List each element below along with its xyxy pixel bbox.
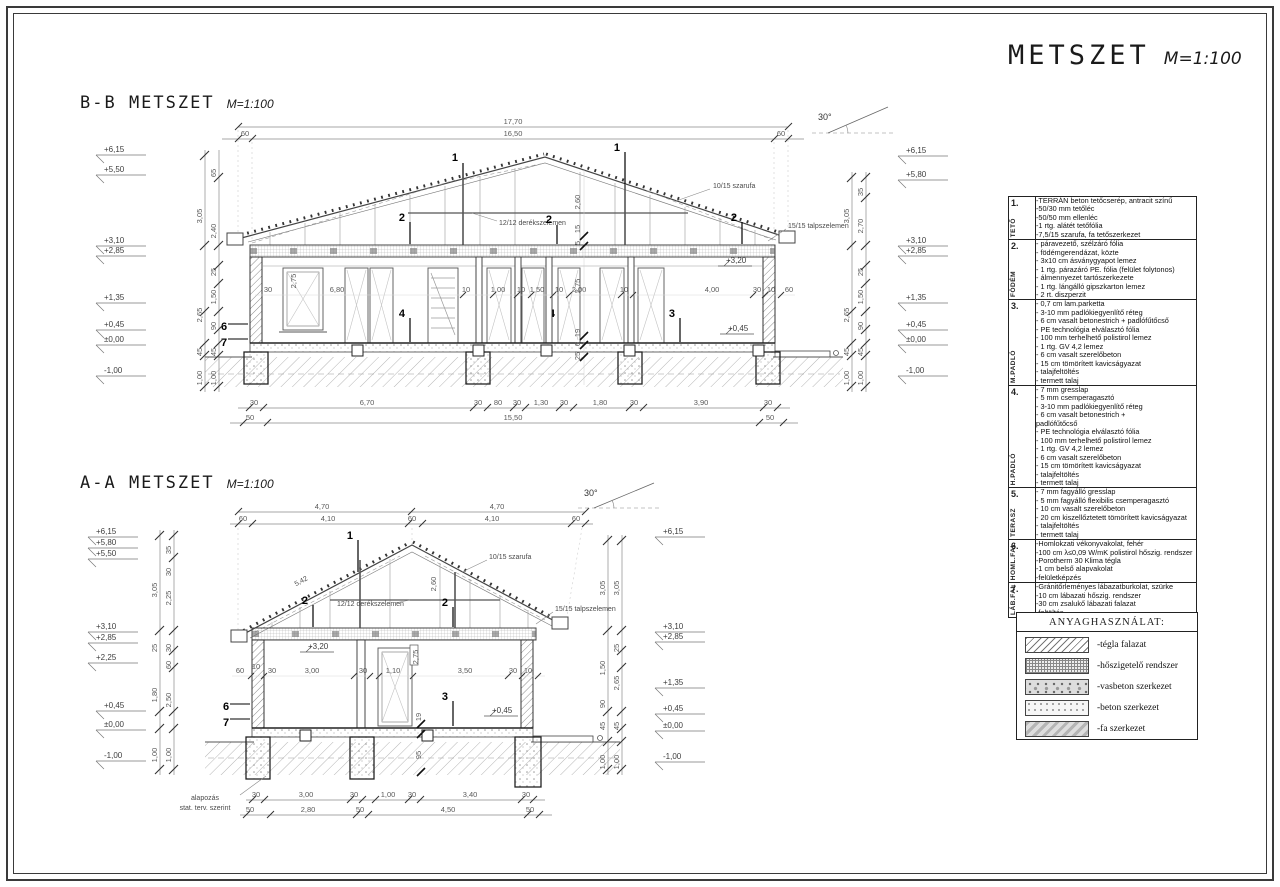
aa-lvl-l8: -1,00 <box>104 751 123 760</box>
aa-drain-symbol <box>598 736 603 741</box>
insulation-hatch-swatch <box>1025 658 1089 674</box>
bb-lvl-r6: ±0,00 <box>906 335 927 344</box>
aa-marker-3: 3 <box>442 691 448 703</box>
bb-chl-1: 3,05 <box>195 209 204 224</box>
bb-chl-3: 25 <box>209 268 218 276</box>
bb-ground-hatch <box>205 357 843 387</box>
sheet-scale: M=1:100 <box>1164 49 1242 69</box>
aa-dimm-2: 30 <box>268 666 276 675</box>
aa-chr-8: 1,00 <box>598 755 607 770</box>
bb-chl-0: 65 <box>209 169 218 177</box>
material-layers-table: 1.TETŐ -TERRÁN beton tetőcserép, antraci… <box>1008 196 1197 618</box>
wood-hatch-swatch <box>1025 721 1089 737</box>
note-number: 2. <box>1009 240 1035 251</box>
aa-dimt2-2: 60 <box>408 514 416 523</box>
bb-chain-right: 35 3,05 2,70 25 2,65 1,50 90 45 45 1,00 … <box>842 172 870 392</box>
aa-dimt1-0: 4,70 <box>315 502 330 511</box>
legend-item-label: -vasbeton szerkezet <box>1097 682 1172 692</box>
aa-lvl-r0: +6,15 <box>663 527 684 536</box>
aa-dimt2-0: 60 <box>239 514 247 523</box>
bb-wall-left <box>250 257 262 343</box>
aa-lvl-l2: +5,50 <box>96 549 117 558</box>
bb-marker-3: 3 <box>669 308 675 320</box>
bb-dim-mid-7: 10 <box>555 285 563 294</box>
bb-lvl-r3: +2,85 <box>906 246 927 255</box>
bb-lvl-l3: +2,85 <box>104 246 125 255</box>
bb-marker-1b: 1 <box>614 142 620 154</box>
bb-dim-mid-13: 60 <box>785 285 793 294</box>
bb-chr-9: 1,00 <box>842 371 851 386</box>
table-row: 2.FÖDÉM - páravezető, szélzáró fólia- fö… <box>1009 240 1197 300</box>
bb-door-2 <box>487 268 511 343</box>
bb-lvl-l1: +5,50 <box>104 165 125 174</box>
legend-item-label: -beton szerkezet <box>1097 703 1159 713</box>
aa-lvl-r2: +2,85 <box>663 632 684 641</box>
bb-lvl-l2: +3,10 <box>104 236 125 245</box>
bb-dim-mid-2: 6,80 <box>330 285 345 294</box>
aa-chl-10: 1,00 <box>164 748 173 763</box>
note-lines: - páravezető, szélzáró fólia- födémgeren… <box>1036 240 1197 300</box>
bb-chr-1: 3,05 <box>842 209 851 224</box>
bb-label-rafter: 10/15 szarufa <box>713 183 756 190</box>
bb-chr-3: 25 <box>856 268 865 276</box>
table-row: 5.TERASZ - 7 mm fagyálló gresslap- 5 mm … <box>1009 488 1197 540</box>
legend-item-label: -hőszigetelő rendszer <box>1097 661 1178 671</box>
bb-lvl-r4: +1,35 <box>906 293 927 302</box>
aa-dimv-2: 19 <box>414 713 423 721</box>
bb-lvl-r1: +5,80 <box>906 170 927 179</box>
sections-drawing: 17,70 60 16,50 60 <box>0 0 1000 887</box>
drawing-sheet: METSZETM=1:100 B-B METSZETM=1:100 A-A ME… <box>0 0 1280 887</box>
bb-marker-2c: 2 <box>731 212 737 224</box>
aa-dimv-3: 95 <box>414 751 423 759</box>
bb-dim-mid-4: 1,00 <box>491 285 506 294</box>
aa-level-045: +0,45 <box>492 706 513 715</box>
aa-dimm-1: 10 <box>252 662 260 671</box>
bb-dimf-2: 50 <box>766 413 774 422</box>
bb-chl-8: 45 <box>209 348 218 356</box>
bb-chr-5: 1,50 <box>856 290 865 305</box>
bb-levels-left: +6,15 +5,50 +3,10 +2,85 +1,35 +0,45 ±0,0… <box>96 145 146 384</box>
aa-chl-4: 25 <box>150 644 159 652</box>
aa-chl-3: 2,25 <box>164 591 173 606</box>
table-row: 3.M.PADLÓ - 0,7 cm lam.parketta- 3-10 mm… <box>1009 300 1197 386</box>
aa-marker-7: 7 <box>223 717 229 729</box>
bb-label-plate: 15/15 talpszelemen <box>788 223 849 230</box>
bb-window-2 <box>558 268 624 343</box>
bb-lvl-r2: +3,10 <box>906 236 927 245</box>
bb-levels-right: +6,15 +5,80 +3,10 +2,85 +1,35 +0,45 ±0,0… <box>898 146 948 384</box>
bb-label-collar: 12/12 derékszelemen <box>499 220 566 227</box>
aa-dimf-4: 50 <box>526 805 534 814</box>
bb-lvl-r7: -1,00 <box>906 366 925 375</box>
bb-chain-left: 65 3,05 2,40 25 2,65 1,50 90 45 45 1,00 … <box>195 150 223 392</box>
legend-item: -fa szerkezet <box>1025 721 1189 737</box>
aa-dimf-3: 4,50 <box>441 805 456 814</box>
aa-chain-left: 35 30 3,05 2,25 25 30 60 1,80 2,50 1,00 … <box>150 530 178 775</box>
bb-door-4 <box>638 268 664 343</box>
note-number: 1. <box>1009 197 1035 208</box>
bb-dimv-2: 5 <box>573 241 582 245</box>
aa-terrace-slab <box>533 736 593 742</box>
bb-slope-text: 30° <box>818 112 832 122</box>
note-number: 4. <box>1009 386 1035 397</box>
bb-dim-mid-11: 30 <box>753 285 761 294</box>
bb-dimb-10: 30 <box>764 398 772 407</box>
note-lines: - 0,7 cm lam.parketta- 3-10 mm padlókieg… <box>1036 300 1197 386</box>
aa-chr-9: 1,00 <box>612 755 621 770</box>
bb-chl-9: 1,00 <box>195 371 204 386</box>
bb-chr-10: 1,00 <box>856 371 865 386</box>
bb-door-double-1 <box>345 268 393 343</box>
bb-chl-5: 1,50 <box>209 290 218 305</box>
aa-dimv-0: 2,60 <box>429 577 438 592</box>
bb-dimf-1: 15,50 <box>504 413 523 422</box>
bb-dimb-6: 30 <box>560 398 568 407</box>
aa-slope-text: 30° <box>584 488 598 498</box>
aa-label-rafter: 10/15 szarufa <box>489 554 532 561</box>
bb-chr-0: 35 <box>856 188 865 196</box>
aa-chl-7: 1,80 <box>150 688 159 703</box>
bb-level-045: +0,45 <box>728 324 749 333</box>
aa-dimb-5: 3,40 <box>463 790 478 799</box>
aa-dimm-4: 30 <box>359 666 367 675</box>
aa-label-collar: 12/12 derékszelemen <box>337 601 404 608</box>
aa-lvl-l1: +5,80 <box>96 538 117 547</box>
aa-interior-wall <box>357 640 365 728</box>
aa-level-320: +3,20 <box>308 642 329 651</box>
aa-lvl-r6: -1,00 <box>663 752 682 761</box>
bb-marker-4a: 4 <box>399 308 406 320</box>
aa-dimm-5: 1,10 <box>386 666 401 675</box>
bb-marker-2b: 2 <box>546 214 552 226</box>
aa-chl-0: 35 <box>164 546 173 554</box>
bb-dim-eave-l: 60 <box>241 129 249 138</box>
bb-door-slatted <box>428 268 458 343</box>
bb-dimb-7: 1,80 <box>593 398 608 407</box>
bb-lvl-r0: +6,15 <box>906 146 927 155</box>
legend-item: -tégla falazat <box>1025 637 1189 653</box>
aa-chl-9: 1,00 <box>150 748 159 763</box>
bb-dim-mid-6: 1,50 <box>530 285 545 294</box>
aa-chr-4: 2,65 <box>612 676 621 691</box>
concrete-hatch-swatch <box>1025 700 1089 716</box>
bb-drawing: 17,70 60 16,50 60 <box>96 107 948 426</box>
bb-dim-mid-0: 30 <box>264 285 272 294</box>
aa-lvl-l5: +2,25 <box>96 653 117 662</box>
bb-dimb-2: 30 <box>474 398 482 407</box>
aa-dimv-1: 2,75 <box>411 650 420 665</box>
bb-dimv-3: 2,75 <box>573 279 582 294</box>
bb-wall-right <box>763 257 775 343</box>
bb-dimb-4: 30 <box>513 398 521 407</box>
bb-chr-8: 45 <box>856 348 865 356</box>
bb-lvl-r5: +0,45 <box>906 320 927 329</box>
bb-dimv-5: 6 <box>573 342 582 346</box>
aa-chr-3: 1,50 <box>598 661 607 676</box>
brick-hatch-swatch <box>1025 637 1089 653</box>
aa-dimt2-1: 4,10 <box>321 514 336 523</box>
bb-dimv-1: 15 <box>573 225 582 233</box>
bb-lvl-l6: ±0,00 <box>104 335 125 344</box>
bb-marker-7: 7 <box>221 337 227 349</box>
bb-dimf-0: 50 <box>246 413 254 422</box>
bb-chr-7: 45 <box>842 348 851 356</box>
bb-chl-4: 2,65 <box>195 308 204 323</box>
aa-chr-7: 45 <box>612 722 621 730</box>
bb-lvl-l0: +6,15 <box>104 145 125 154</box>
aa-dimf-0: 50 <box>246 805 254 814</box>
aa-lvl-l0: +6,15 <box>96 527 117 536</box>
aa-chr-6: 45 <box>598 722 607 730</box>
legend-item: -beton szerkezet <box>1025 700 1189 716</box>
bb-dim-mid-5: 10 <box>517 285 525 294</box>
aa-dimb-4: 30 <box>408 790 416 799</box>
bb-lvl-l7: -1,00 <box>104 366 123 375</box>
bb-dim-inner: 16,50 <box>504 129 523 138</box>
aa-lvl-r1: +3,10 <box>663 622 684 631</box>
bb-chr-4: 2,65 <box>842 308 851 323</box>
bb-dim-mid-1: 2,75 <box>289 274 298 289</box>
bb-marker-6: 6 <box>221 321 227 333</box>
aa-lvl-l3: +3,10 <box>96 622 117 631</box>
legend-item: -hőszigetelő rendszer <box>1025 658 1189 674</box>
reinforced-concrete-hatch-swatch <box>1025 679 1089 695</box>
aa-chl-5: 30 <box>164 644 173 652</box>
note-category: TETŐ <box>1010 218 1017 237</box>
aa-dimb-1: 3,00 <box>299 790 314 799</box>
aa-chl-2: 3,05 <box>150 583 159 598</box>
note-category: H.PADLÓ <box>1010 453 1017 485</box>
bb-chl-7: 45 <box>195 348 204 356</box>
aa-dimf-2: 50 <box>356 805 364 814</box>
table-row: 4.H.PADLÓ - 7 mm gresslap- 5 mm csempera… <box>1009 385 1197 487</box>
aa-marker-2a: 2 <box>302 595 308 607</box>
bb-dimb-8: 30 <box>630 398 638 407</box>
aa-lvl-l4: +2,85 <box>96 633 117 642</box>
note-lines: -TERRÁN beton tetőcserép, antracit színű… <box>1036 197 1197 240</box>
aa-dimb-3: 1,00 <box>381 790 396 799</box>
note-category: LÁB.FAL <box>1010 584 1017 615</box>
aa-lvl-r3: +1,35 <box>663 678 684 687</box>
aa-lvl-r5: ±0,00 <box>663 721 684 730</box>
aa-chr-0: 3,05 <box>598 581 607 596</box>
bb-dim-mid-12: 10 <box>767 285 775 294</box>
bb-marker-1a: 1 <box>452 152 458 164</box>
bb-dimb-3: 80 <box>494 398 502 407</box>
bb-chr-6: 90 <box>856 322 865 330</box>
aa-dimb-2: 30 <box>350 790 358 799</box>
bb-openings <box>279 268 664 343</box>
aa-marker-2b: 2 <box>442 597 448 609</box>
aa-chr-2: 25 <box>612 644 621 652</box>
legend-item-label: -fa szerkezet <box>1097 724 1145 734</box>
bb-marker-2a: 2 <box>399 212 405 224</box>
aa-dimm-8: 10 <box>524 666 532 675</box>
aa-lvl-l7: ±0,00 <box>104 720 125 729</box>
aa-dimm-6: 3,50 <box>458 666 473 675</box>
legend-title: ANYAGHASZNÁLAT: <box>1017 613 1197 632</box>
aa-drawing: 4,70 4,70 60 4,10 60 4,10 60 <box>88 483 705 818</box>
aa-chr-1: 3,05 <box>612 581 621 596</box>
note-category: FÖDÉM <box>1010 271 1017 297</box>
bb-lvl-l4: +1,35 <box>104 293 125 302</box>
table-row: 1.TETŐ -TERRÁN beton tetőcserép, antraci… <box>1009 197 1197 240</box>
aa-dimt1-1: 4,70 <box>490 502 505 511</box>
note-category: HOML.FAL <box>1010 543 1017 580</box>
aa-wall-right <box>521 640 533 728</box>
bb-terrace-slab <box>775 351 830 357</box>
legend-item-label: -tégla falazat <box>1097 640 1146 650</box>
bb-door-3 <box>522 268 544 343</box>
note-category: TERASZ <box>1010 508 1017 537</box>
aa-dimf-1: 2,80 <box>301 805 316 814</box>
note-lines: - 7 mm fagyálló gresslap- 5 mm fagyálló … <box>1036 488 1197 540</box>
bb-slope-symbol: 30° <box>812 107 895 133</box>
bb-lvl-l5: +0,45 <box>104 320 125 329</box>
aa-levels-left: +6,15 +5,80 +5,50 +3,10 +2,85 +2,25 +0,4… <box>88 527 146 769</box>
aa-dimb-6: 30 <box>522 790 530 799</box>
bb-drain-symbol <box>834 351 839 356</box>
aa-lvl-r4: +0,45 <box>663 704 684 713</box>
aa-floor-slab <box>252 728 533 737</box>
bb-floor-slab <box>250 343 775 352</box>
aa-dimt2-4: 60 <box>572 514 580 523</box>
aa-label-plate: 15/15 talpszelemen <box>555 606 616 613</box>
bb-dimb-5: 1,30 <box>534 398 549 407</box>
bb-dimv-0: 2,60 <box>573 195 582 210</box>
aa-chl-8: 2,50 <box>164 693 173 708</box>
aa-dimb-0: 30 <box>252 790 260 799</box>
bb-dim-total: 17,70 <box>504 117 523 126</box>
sheet-title-text: METSZET <box>1008 40 1150 71</box>
note-category: M.PADLÓ <box>1010 350 1017 383</box>
aa-foundation-note-1: alapozás <box>191 795 220 802</box>
bb-level-320: +3,20 <box>726 256 747 265</box>
aa-dimt2-3: 4,10 <box>485 514 500 523</box>
bb-chl-6: 90 <box>209 322 218 330</box>
aa-marker-6: 6 <box>223 701 229 713</box>
aa-dimm-3: 3,00 <box>305 666 320 675</box>
aa-chl-6: 60 <box>164 661 173 669</box>
aa-rafter-length: 5,42 <box>294 575 309 588</box>
bb-chr-2: 2,70 <box>856 219 865 234</box>
bb-chl-2: 2,40 <box>209 224 218 239</box>
bb-dimv-6: 25 <box>573 352 582 360</box>
table-row: 6.HOML.FAL -Homlokzati vékonyvakolat, fe… <box>1009 540 1197 583</box>
bb-dimb-1: 6,70 <box>360 398 375 407</box>
note-number: 5. <box>1009 488 1035 499</box>
material-usage-legend: ANYAGHASZNÁLAT: -tégla falazat -hősziget… <box>1016 612 1198 740</box>
aa-chr-5: 90 <box>598 700 607 708</box>
bb-dim-mid-10: 4,00 <box>705 285 720 294</box>
bb-dim-eave-r: 60 <box>777 129 785 138</box>
bb-window-1 <box>279 268 327 332</box>
bb-dimb-0: 30 <box>250 398 258 407</box>
legend-item: -vasbeton szerkezet <box>1025 679 1189 695</box>
aa-wall-left <box>252 640 264 728</box>
aa-lvl-l6: +0,45 <box>104 701 125 710</box>
aa-foundation-note-2: stat. terv. szerint <box>180 805 231 812</box>
aa-chl-1: 30 <box>164 568 173 576</box>
aa-dimm-0: 60 <box>236 666 244 675</box>
bb-chl-10: 1,00 <box>209 371 218 386</box>
bb-dimv-4: 19 <box>573 329 582 337</box>
note-number: 3. <box>1009 300 1035 311</box>
note-lines: -Homlokzati vékonyvakolat, fehér-100 cm … <box>1036 540 1197 583</box>
sheet-title: METSZETM=1:100 <box>1008 40 1242 71</box>
bb-roof <box>227 154 795 245</box>
aa-marker-1: 1 <box>347 530 353 542</box>
bb-dimb-9: 3,90 <box>694 398 709 407</box>
aa-levels-right: +6,15 +3,10 +2,85 +1,35 +0,45 ±0,00 -1,0… <box>655 527 705 770</box>
aa-slope-symbol: 30° <box>578 483 660 508</box>
note-lines: - 7 mm gresslap- 5 mm csemperagasztó- 3-… <box>1036 385 1197 487</box>
